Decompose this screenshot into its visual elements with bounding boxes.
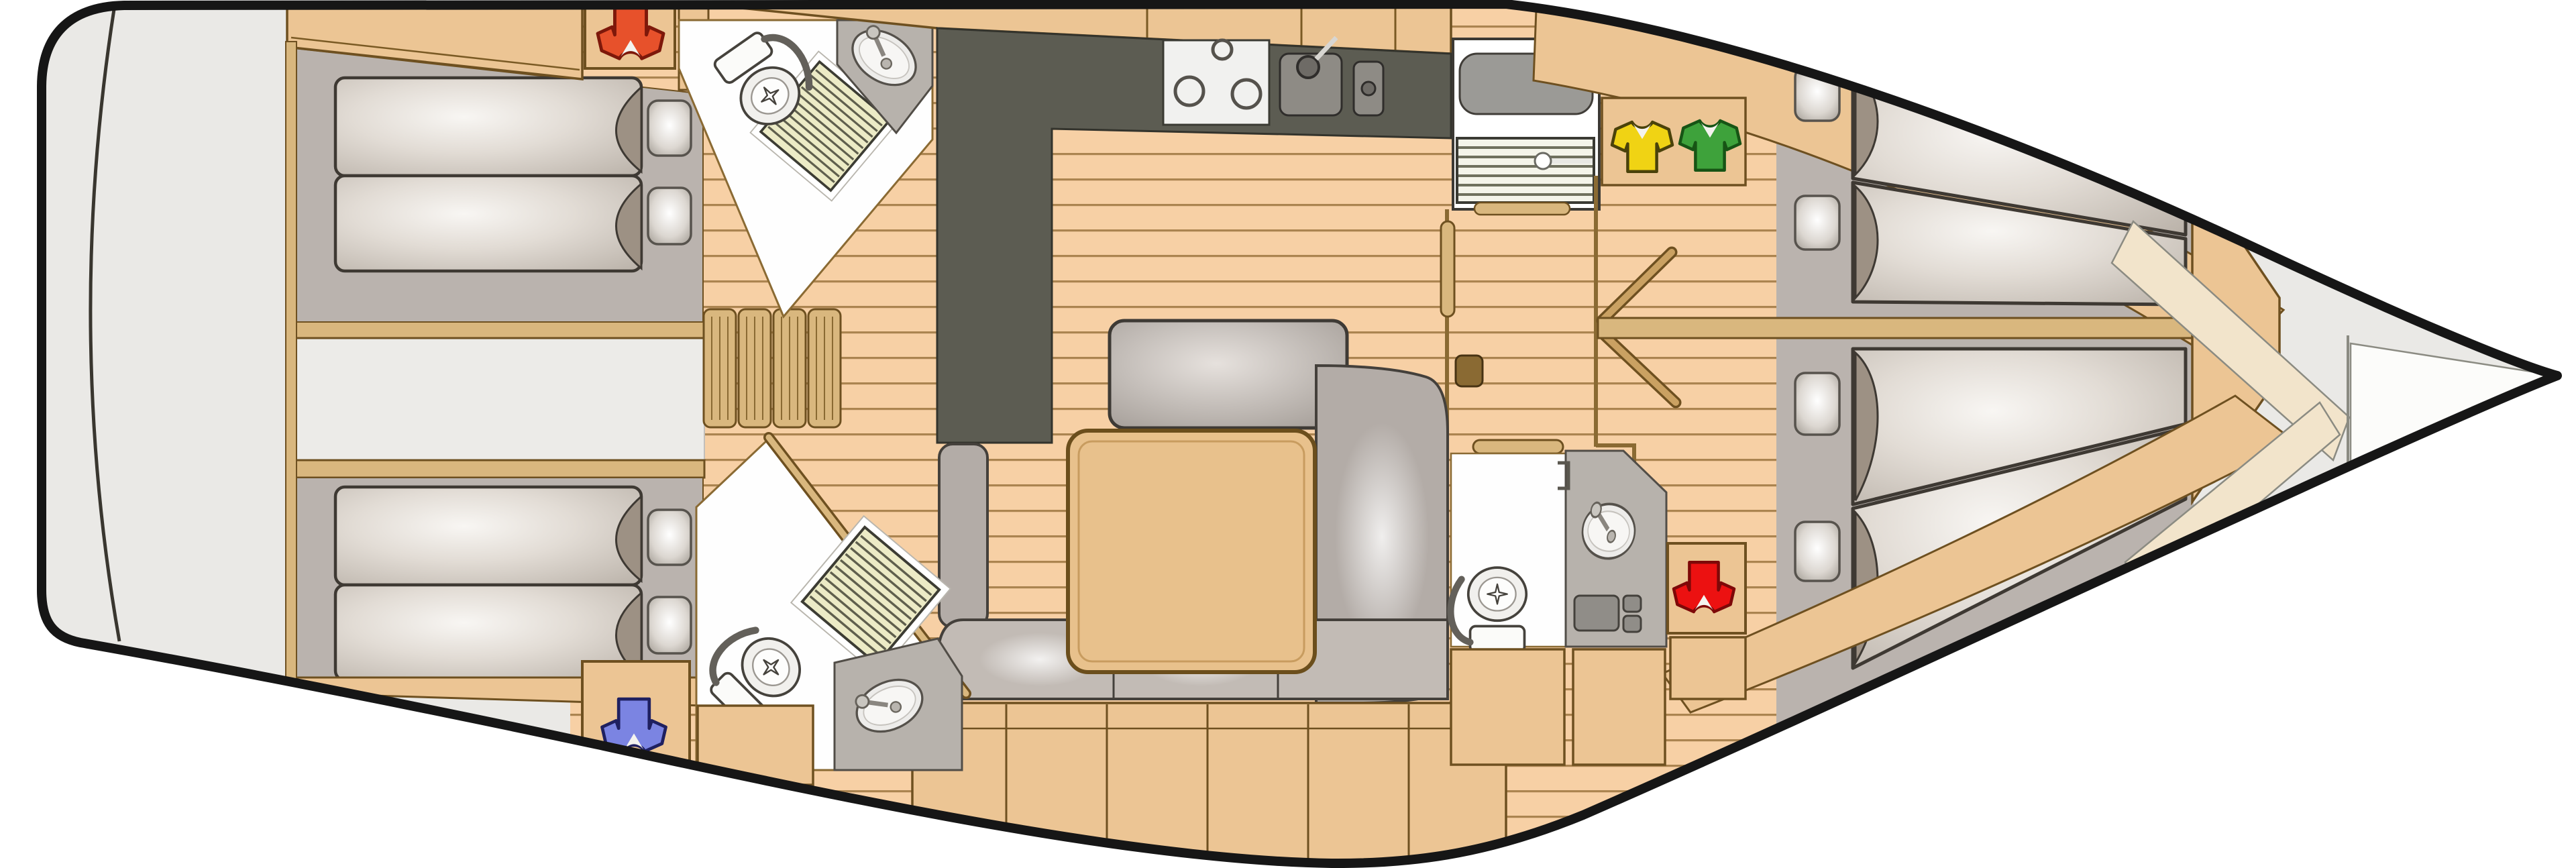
engine-compartment <box>290 321 704 478</box>
aft-cabin-port <box>294 48 703 322</box>
forward-head <box>1450 440 1666 652</box>
sofa-back-left <box>939 444 987 627</box>
locker-below-red <box>1670 637 1746 699</box>
saloon-lockers <box>912 703 1506 868</box>
yacht-floorplan <box>0 0 2576 868</box>
locker-forward-1 <box>1451 649 1564 765</box>
bed-aft-port <box>335 78 691 271</box>
bench-seat <box>1110 321 1347 428</box>
forward-head-drawer-large <box>1574 596 1619 631</box>
forward-head-door <box>1473 440 1563 453</box>
pocket-door <box>1441 221 1454 317</box>
locker-forward-2 <box>1573 649 1665 765</box>
stove <box>1163 40 1269 125</box>
forward-cabin-divider <box>1598 318 2239 338</box>
saloon-table <box>1068 431 1315 672</box>
companionway-sill <box>1474 203 1570 215</box>
companionway-steps <box>1457 138 1594 203</box>
bed-aft-starboard <box>335 487 691 680</box>
mast-latch <box>1456 356 1483 386</box>
